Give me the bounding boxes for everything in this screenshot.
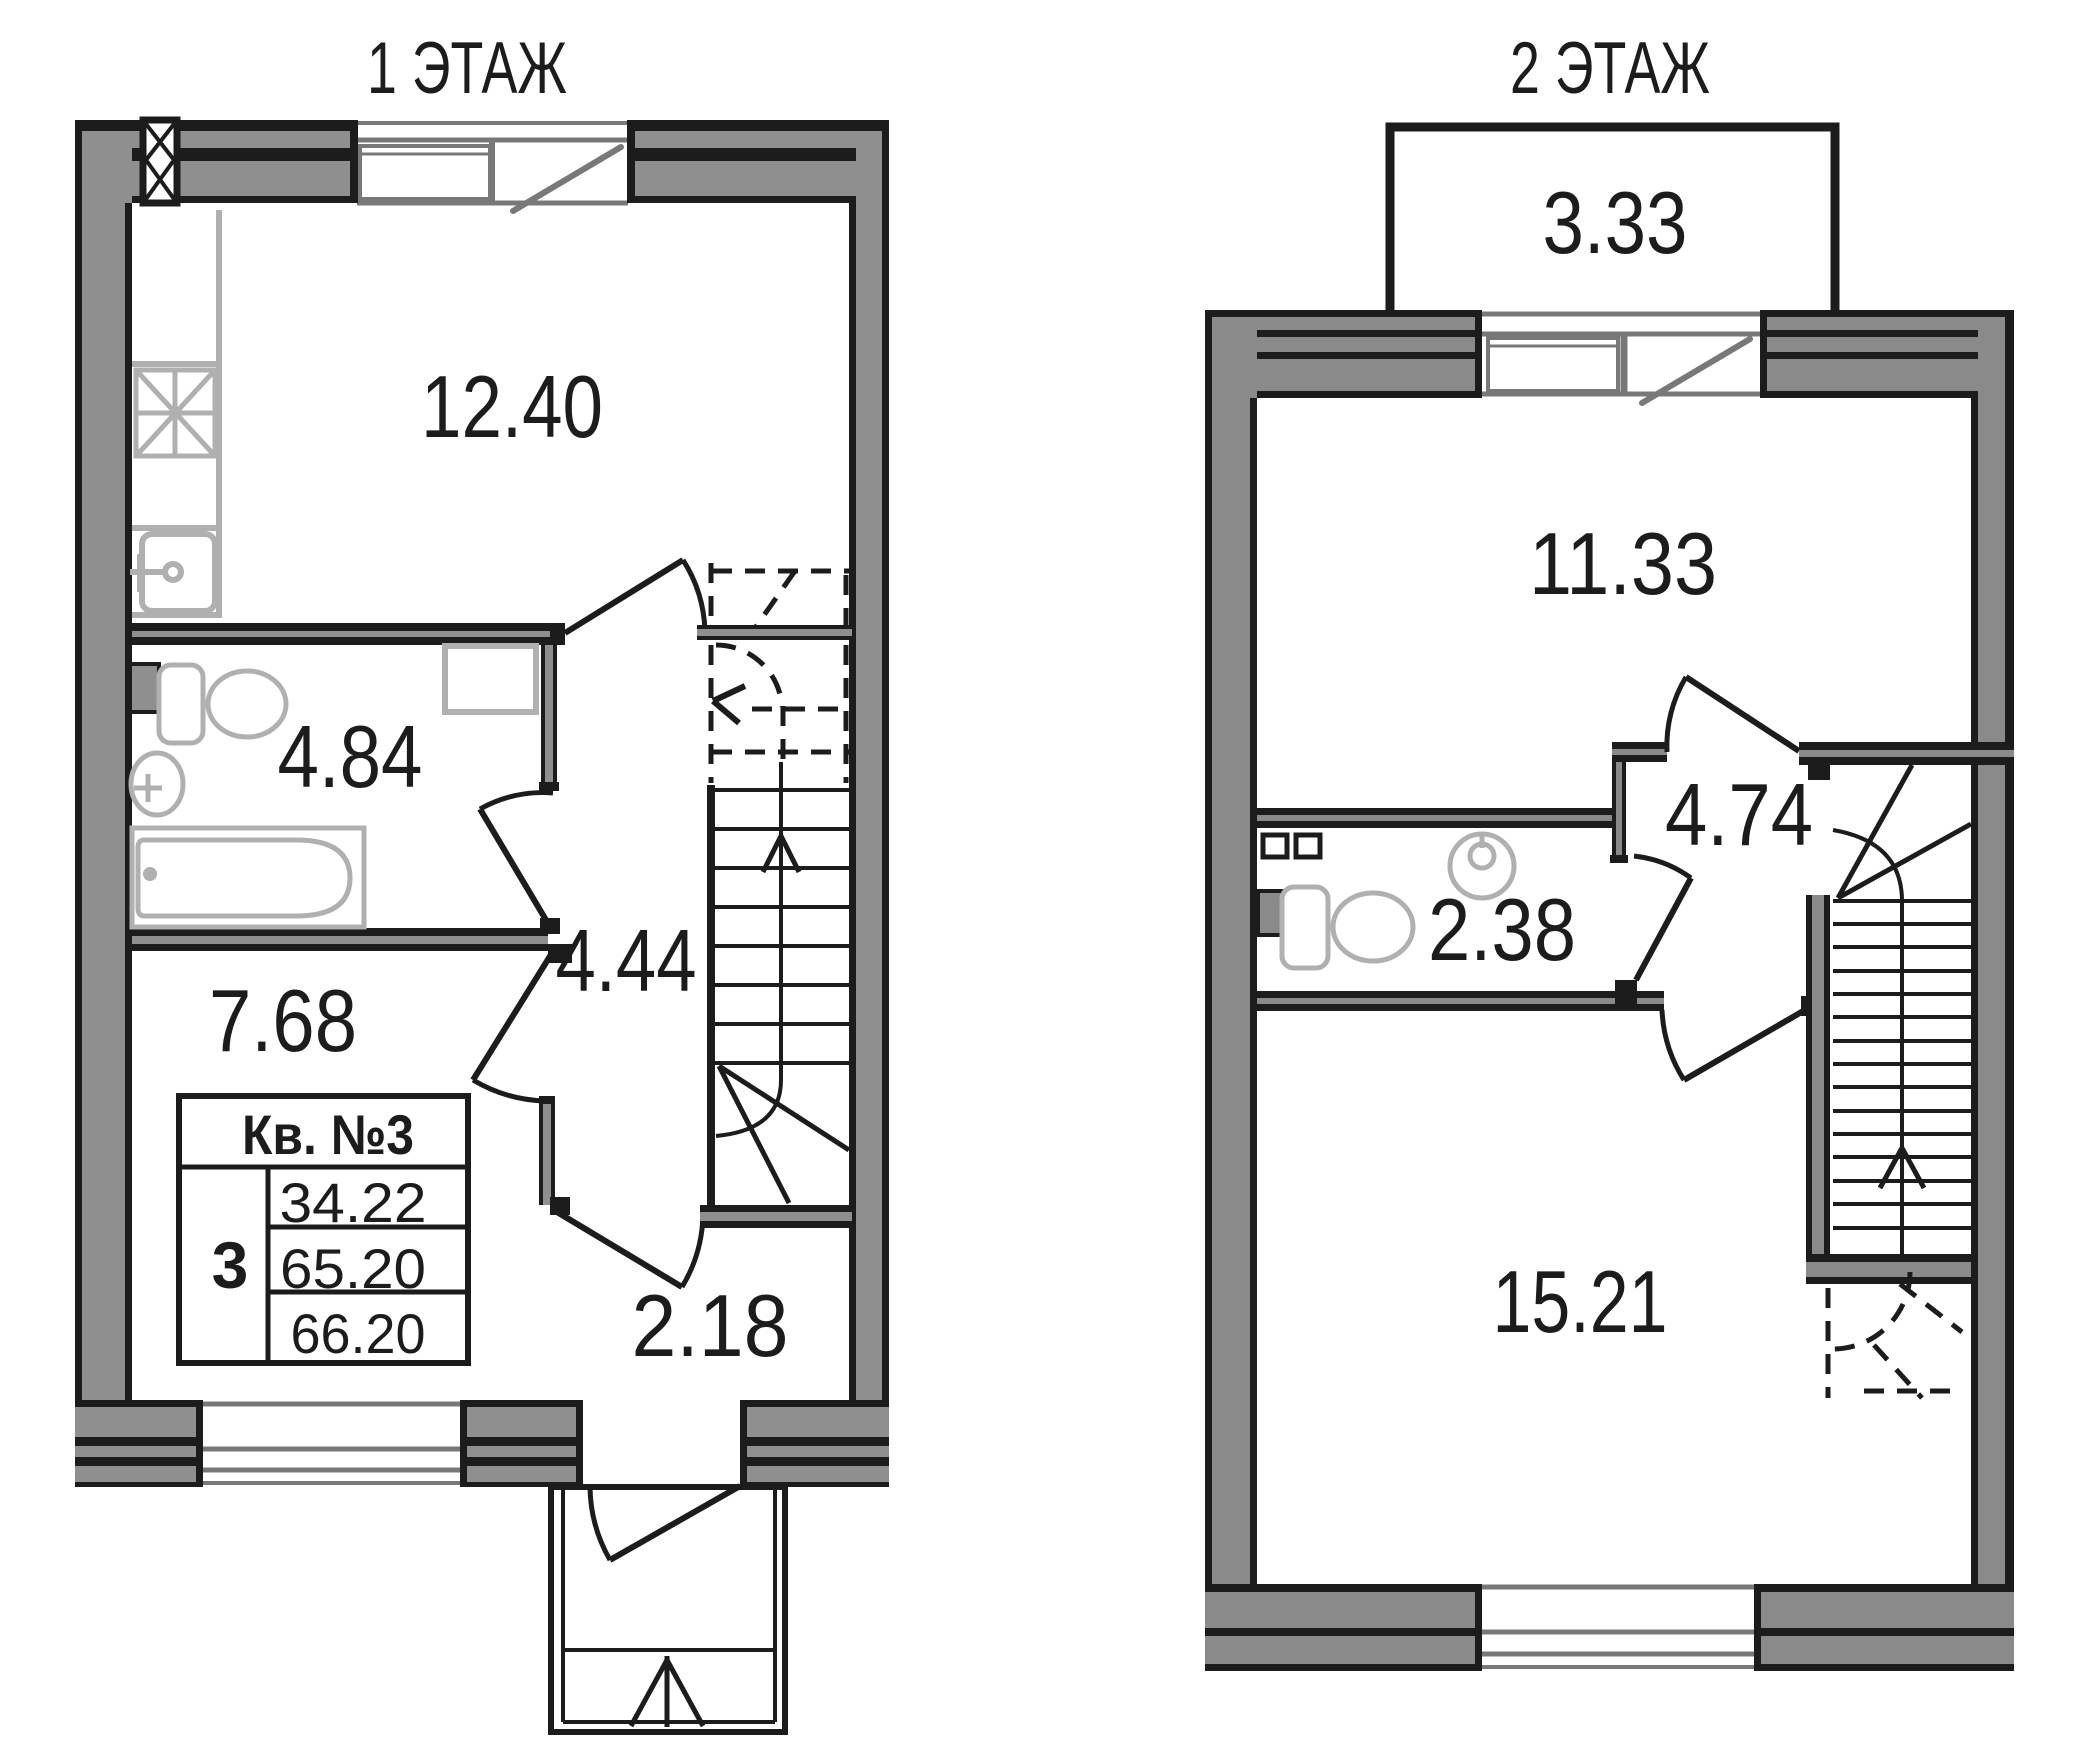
svg-text:4.44: 4.44 <box>556 911 697 1010</box>
svg-text:7.68: 7.68 <box>209 971 357 1070</box>
svg-text:1 ЭТАЖ: 1 ЭТАЖ <box>367 28 567 109</box>
svg-text:2.38: 2.38 <box>1428 880 1576 979</box>
svg-text:4.84: 4.84 <box>278 707 423 806</box>
svg-text:12.40: 12.40 <box>421 357 603 456</box>
svg-text:Кв. №3: Кв. №3 <box>242 1103 414 1166</box>
svg-text:2.18: 2.18 <box>632 1276 789 1375</box>
svg-text:66.20: 66.20 <box>291 1302 426 1365</box>
svg-text:34.22: 34.22 <box>280 1171 427 1234</box>
svg-text:11.33: 11.33 <box>1529 514 1717 613</box>
svg-text:3.33: 3.33 <box>1543 173 1688 272</box>
svg-text:3: 3 <box>212 1228 249 1302</box>
svg-text:65.20: 65.20 <box>280 1237 426 1300</box>
svg-text:15.21: 15.21 <box>1493 1252 1668 1351</box>
svg-text:2 ЭТАЖ: 2 ЭТАЖ <box>1510 28 1710 109</box>
svg-text:4.74: 4.74 <box>1665 765 1813 864</box>
